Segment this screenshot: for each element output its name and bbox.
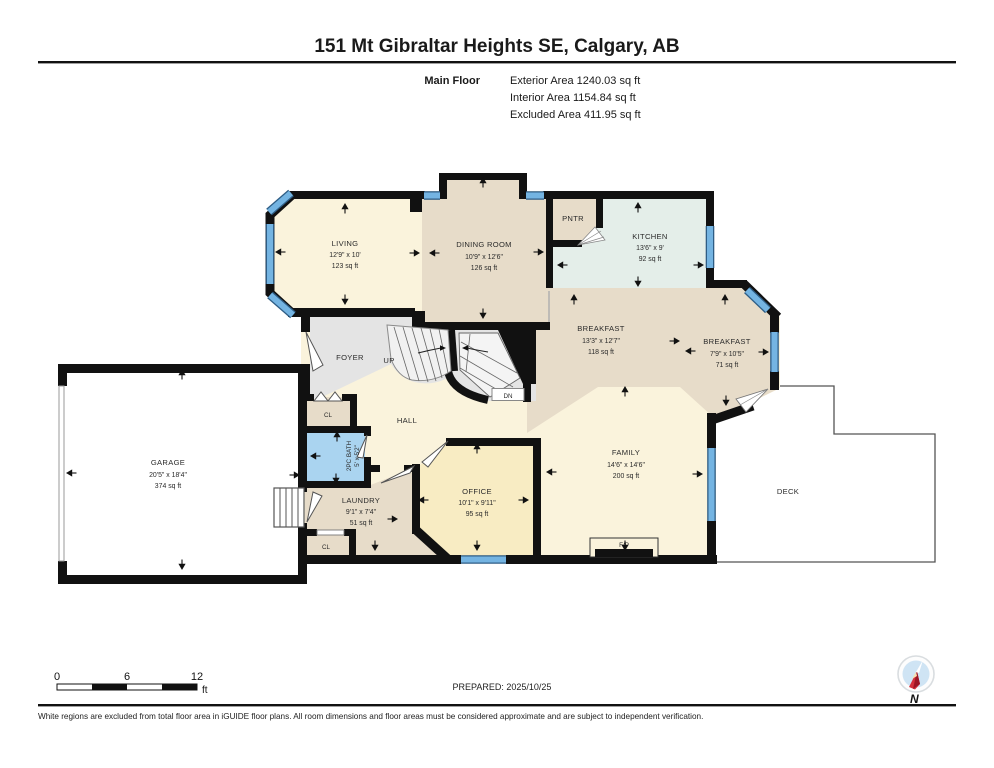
svg-text:HALL: HALL [397,416,417,425]
svg-text:2PC BATH: 2PC BATH [346,440,353,471]
svg-text:DN: DN [503,393,513,400]
svg-text:Interior Area 1154.84 sq ft: Interior Area 1154.84 sq ft [510,92,636,104]
svg-text:374 sq ft: 374 sq ft [155,483,182,490]
svg-text:9'1" x 7'4": 9'1" x 7'4" [346,509,377,516]
svg-text:Exterior Area 1240.03 sq ft: Exterior Area 1240.03 sq ft [510,75,640,87]
svg-text:CL: CL [322,544,331,551]
svg-text:20'5" x 18'4": 20'5" x 18'4" [149,472,187,479]
svg-text:7'9" x 10'5": 7'9" x 10'5" [710,351,745,358]
svg-text:GARAGE: GARAGE [151,458,185,467]
svg-text:PREPARED: 2025/10/25: PREPARED: 2025/10/25 [453,682,552,692]
svg-text:118 sq ft: 118 sq ft [588,349,614,356]
svg-text:126 sq ft: 126 sq ft [471,265,498,272]
svg-text:Excluded Area 411.95 sq ft: Excluded Area 411.95 sq ft [510,109,641,121]
svg-text:White regions are excluded fro: White regions are excluded from total fl… [38,712,703,721]
svg-text:Main Floor: Main Floor [424,75,480,87]
svg-text:13'3" x 12'7": 13'3" x 12'7" [582,338,620,345]
svg-text:13'6" x 9': 13'6" x 9' [636,245,664,252]
svg-text:14'6" x 14'6": 14'6" x 14'6" [607,462,645,469]
svg-text:5' x 5'2": 5' x 5'2" [354,445,361,467]
svg-text:ft: ft [202,685,208,696]
svg-text:6: 6 [124,671,130,683]
svg-text:PNTR: PNTR [562,214,584,223]
svg-text:BREAKFAST: BREAKFAST [703,337,750,346]
svg-text:10'1" x 9'11": 10'1" x 9'11" [458,500,496,507]
svg-text:N: N [910,692,919,706]
svg-text:LIVING: LIVING [332,239,359,248]
svg-text:OFFICE: OFFICE [462,487,492,496]
svg-text:LAUNDRY: LAUNDRY [342,496,380,505]
svg-text:200 sq ft: 200 sq ft [613,473,640,480]
svg-text:UP: UP [383,356,394,365]
svg-text:BREAKFAST: BREAKFAST [577,324,624,333]
svg-text:KITCHEN: KITCHEN [632,232,667,241]
svg-text:0: 0 [54,671,60,683]
svg-text:10'9" x 12'6": 10'9" x 12'6" [465,254,503,261]
svg-text:12: 12 [191,671,203,683]
svg-text:CL: CL [324,412,333,419]
svg-text:95 sq ft: 95 sq ft [466,511,489,518]
svg-text:123 sq ft: 123 sq ft [332,263,359,270]
svg-text:DINING ROOM: DINING ROOM [456,240,512,249]
svg-text:92 sq ft: 92 sq ft [639,256,662,263]
svg-text:12'9" x 10': 12'9" x 10' [329,252,361,259]
svg-text:151 Mt Gibraltar Heights SE, C: 151 Mt Gibraltar Heights SE, Calgary, AB [314,36,679,57]
svg-text:FOYER: FOYER [336,353,364,362]
svg-text:51 sq ft: 51 sq ft [350,520,373,527]
svg-text:DECK: DECK [777,487,799,496]
svg-text:FAMILY: FAMILY [612,448,640,457]
svg-text:71 sq ft: 71 sq ft [716,362,739,369]
